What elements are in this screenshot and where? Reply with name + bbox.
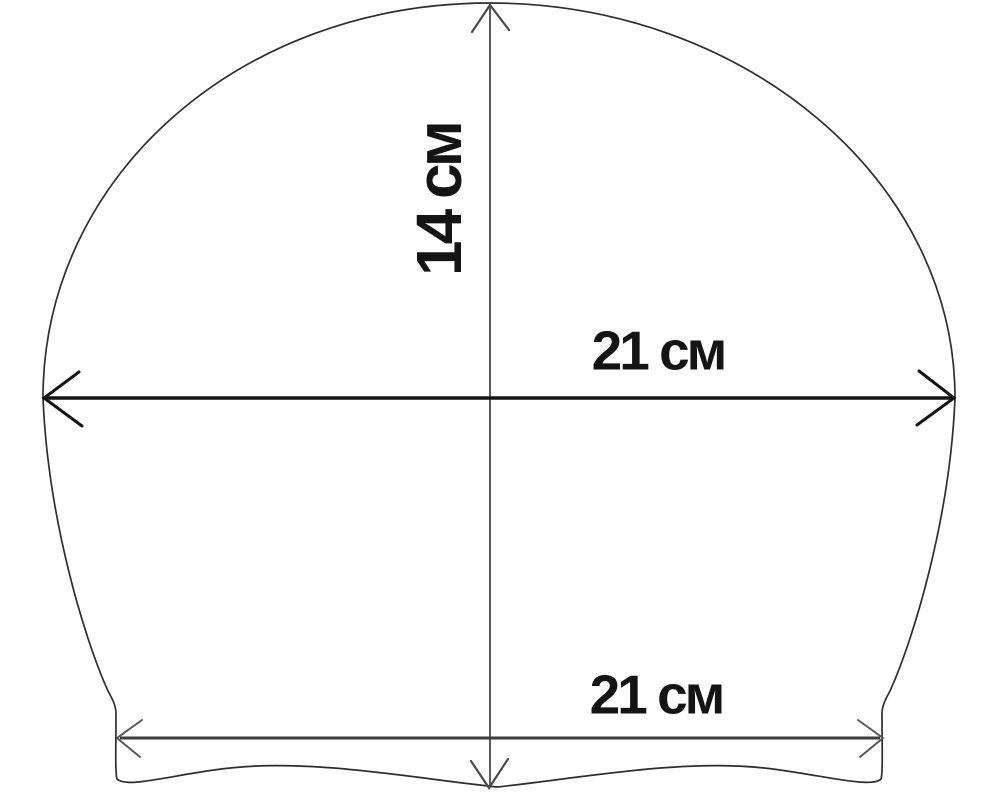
base-width-dimension [117, 720, 883, 757]
width-dimension-label: 21 см [592, 324, 725, 379]
swim-cap-drawing [0, 0, 1000, 796]
width-dimension [44, 371, 954, 426]
swim-cap-outline [43, 3, 955, 787]
base-width-dimension-label: 21 см [590, 668, 723, 723]
diagram-canvas: 14 см 21 см 21 см [0, 0, 1000, 796]
height-dimension-label: 14 см [407, 124, 471, 276]
